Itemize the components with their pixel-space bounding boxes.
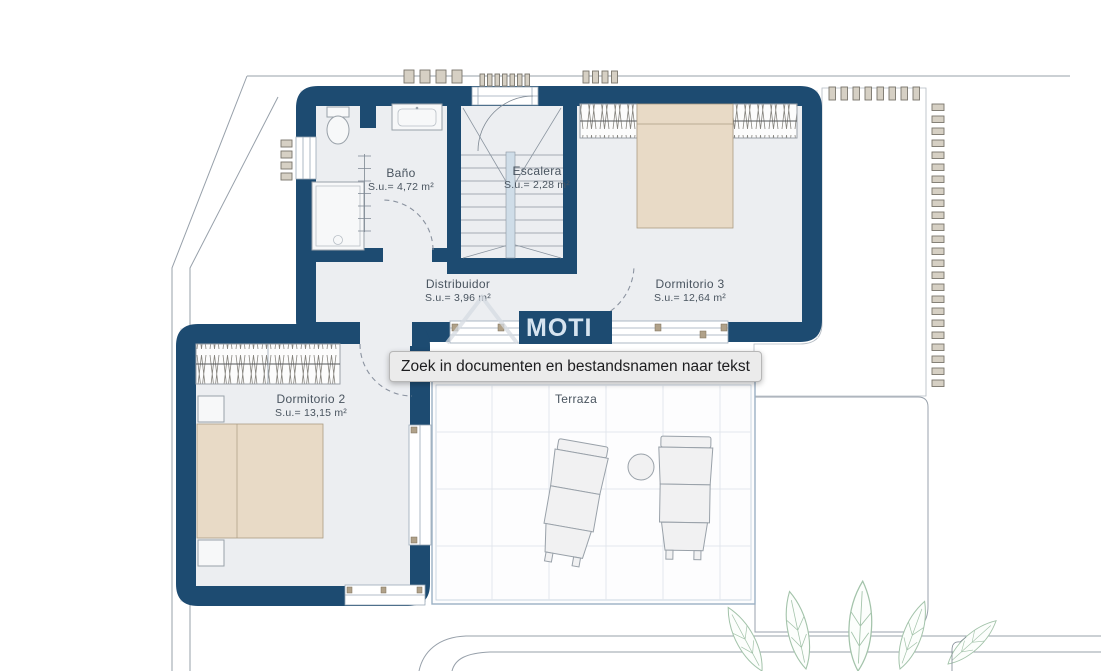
- bed-dormitorio-3: [637, 104, 733, 228]
- window-dorm2-side: [409, 425, 431, 545]
- wardrobe-dorm3-left: [580, 104, 637, 138]
- bed-dormitorio-2: [197, 424, 323, 538]
- window-bathroom: [281, 137, 316, 180]
- sun-lounger-2: [657, 436, 713, 560]
- room-label-escalera: Escalera: [512, 164, 561, 178]
- tooltip-text: Zoek in documenten en bestandsnamen naar…: [401, 358, 750, 375]
- nightstand-2: [198, 540, 224, 566]
- garden-area: [755, 397, 928, 632]
- room-area-dormitorio2: S.u.= 13,15 m²: [275, 407, 347, 419]
- floor-plan-svg: Baño S.u.= 4,72 m² Escalera S.u.= 2,28 m…: [0, 0, 1101, 671]
- tooltip: Zoek in documenten en bestandsnamen naar…: [389, 351, 762, 382]
- window-dorm2-bottom: [345, 585, 425, 605]
- nightstand-1: [198, 396, 224, 422]
- wardrobe-dorm3-right: [733, 104, 797, 138]
- room-area-bano: S.u.= 4,72 m²: [368, 181, 434, 193]
- shower: [312, 182, 364, 250]
- room-area-dormitorio3: S.u.= 12,64 m²: [654, 292, 726, 304]
- room-area-escalera: S.u.= 2,28 m²: [504, 179, 570, 191]
- room-label-dormitorio3: Dormitorio 3: [656, 277, 725, 291]
- room-label-bano: Baño: [386, 166, 415, 180]
- floor-plan-viewer: Baño S.u.= 4,72 m² Escalera S.u.= 2,28 m…: [0, 0, 1101, 671]
- side-table: [628, 454, 654, 480]
- terrace: [432, 381, 755, 604]
- room-label-distribuidor: Distribuidor: [426, 277, 490, 291]
- roof-vents: [404, 70, 618, 86]
- wardrobe-dorm2: [196, 344, 340, 384]
- fence-markers: [829, 87, 944, 387]
- watermark-text: MOTI: [526, 314, 593, 342]
- sink: [392, 104, 442, 130]
- room-label-dormitorio2: Dormitorio 2: [277, 392, 346, 406]
- toilet: [327, 107, 349, 144]
- room-label-terraza: Terraza: [555, 392, 597, 406]
